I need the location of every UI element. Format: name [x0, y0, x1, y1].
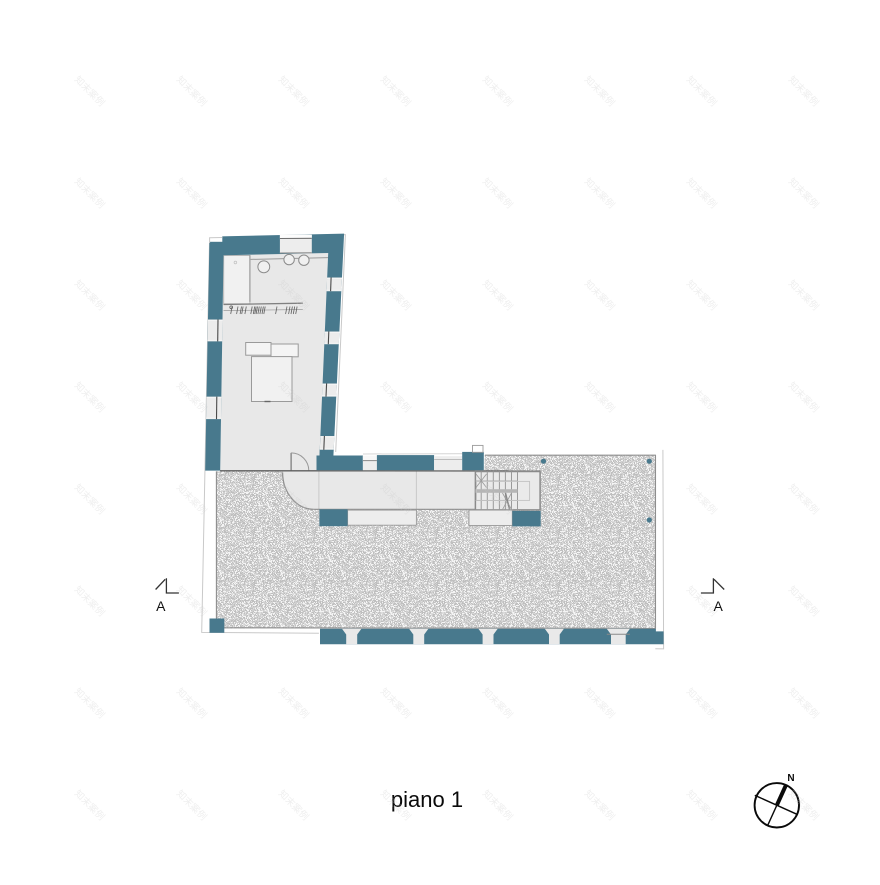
svg-text:N: N: [787, 773, 794, 784]
svg-text:A: A: [156, 598, 166, 614]
